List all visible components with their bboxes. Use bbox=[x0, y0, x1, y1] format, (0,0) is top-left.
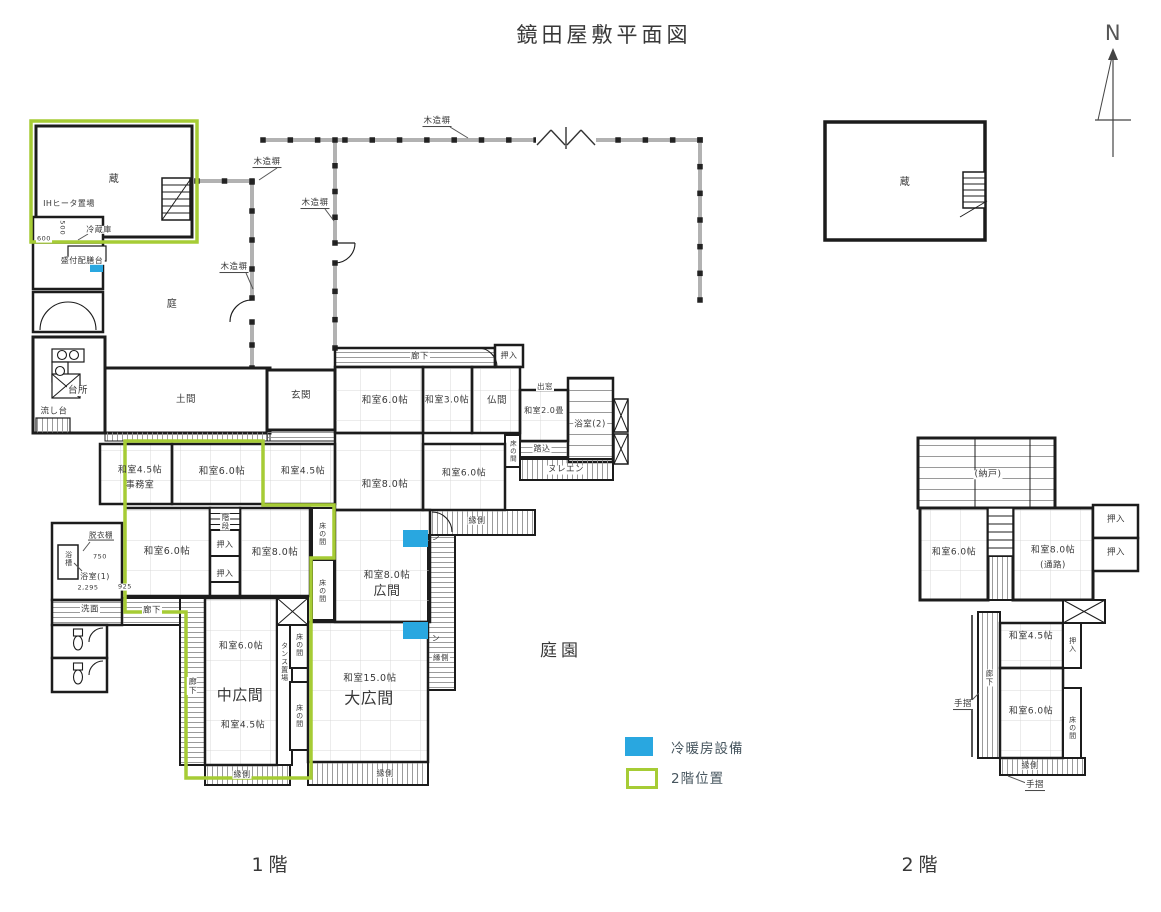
label-doma: 土間 bbox=[176, 395, 196, 405]
label-washitsu-45-office: 和室4.5帖 bbox=[118, 466, 162, 475]
label-tokonoma-d: 床の間 bbox=[294, 704, 303, 728]
label-demado: 出窓 bbox=[536, 383, 554, 391]
label-corridor-left: 廊下 bbox=[142, 607, 162, 616]
label-tansu-okiba: タンス置場 bbox=[279, 642, 288, 682]
label-kura-1f: 蔵 bbox=[109, 175, 120, 186]
label-kitchen: 台所 bbox=[67, 386, 89, 396]
label-refrigerator: 冷蔵庫 bbox=[85, 226, 113, 234]
label-fence-label-left: 木造塀 bbox=[252, 158, 281, 168]
label-engawa-2f: 縁側 bbox=[1021, 762, 1040, 770]
label-dim-600: 600 bbox=[36, 236, 52, 243]
label-kura-2f: 蔵 bbox=[900, 178, 911, 189]
plan-labels: 蔵IHヒータ置場冷蔵庫500600盛付配膳台木造塀木造塀木造塀木造塀庭台所流し台… bbox=[0, 0, 1161, 912]
label-ih-heater-area: IHヒータ置場 bbox=[42, 200, 96, 208]
caption-floor2: 2階 bbox=[901, 856, 942, 876]
label-kaidan-mid: 階段 bbox=[220, 514, 230, 531]
label-tesuri-bottom: 手摺 bbox=[1025, 781, 1045, 791]
label-tokonoma-1f-small: 床の間 bbox=[508, 440, 517, 463]
label-oshiire-2f-right-1: 押入 bbox=[1107, 516, 1125, 525]
legend-floor2-label: 2階位置 bbox=[671, 767, 724, 787]
label-washitsu-45-naka: 和室4.5帖 bbox=[221, 721, 265, 730]
label-tokonoma-c: 床の間 bbox=[294, 633, 303, 657]
garden-label: 庭園 bbox=[540, 643, 582, 661]
label-sink: 流し台 bbox=[39, 408, 68, 417]
legend-hvac-label: 冷暖房設備 bbox=[671, 737, 744, 757]
label-aircon-text-2: ン bbox=[432, 635, 441, 643]
label-aircon-text-1: ン bbox=[432, 534, 441, 542]
label-fumikomi: 踏込 bbox=[533, 445, 552, 453]
label-fence-label-mid: 木造塀 bbox=[300, 199, 329, 209]
label-washitsu-6-right: 和室6.0帖 bbox=[442, 469, 486, 478]
label-washitsu-6-2f: 和室6.0帖 bbox=[932, 548, 976, 557]
label-genkan: 玄関 bbox=[291, 391, 311, 401]
label-oshiire-2f-right-2: 押入 bbox=[1107, 549, 1125, 558]
label-washitsu-2: 和室2.0畳 bbox=[523, 407, 565, 415]
label-washitsu-45-2f: 和室4.5帖 bbox=[1009, 632, 1053, 641]
label-washitsu-8-center: 和室8.0帖 bbox=[362, 480, 409, 490]
label-dim-750: 750 bbox=[92, 554, 108, 561]
label-oshiire-top: 押入 bbox=[500, 352, 519, 360]
label-dai-hiroma: 大広間 bbox=[344, 691, 394, 708]
label-tesuri-left: 手摺 bbox=[953, 700, 973, 710]
label-oshiire-2f-v: 押入 bbox=[1067, 637, 1076, 653]
caption-floor1: 1階 bbox=[251, 856, 292, 876]
label-engawa-bottom-right: 縁側 bbox=[376, 770, 395, 778]
label-tsuro-2f: (通路) bbox=[1040, 562, 1066, 571]
label-engawa-upper-right: 縁側 bbox=[468, 517, 487, 525]
label-engawa-right: 縁側 bbox=[432, 654, 450, 662]
label-bathroom-2: 浴室(2) bbox=[573, 421, 607, 430]
label-dim-500: 500 bbox=[58, 220, 67, 235]
label-rouka-2f: 廊下 bbox=[984, 670, 994, 687]
label-dim-2295: 2,295 bbox=[76, 585, 99, 592]
floorplan-canvas: 蔵IHヒータ置場冷蔵庫500600盛付配膳台木造塀木造塀木造塀木造塀庭台所流し台… bbox=[0, 0, 1161, 912]
label-washitsu-6-top: 和室6.0帖 bbox=[362, 396, 409, 406]
label-oshiire-mid-1: 押入 bbox=[216, 541, 235, 549]
label-tokonoma-b: 床の間 bbox=[317, 579, 326, 603]
label-courtyard: 庭 bbox=[167, 300, 178, 311]
label-fence-label-lower: 木造塀 bbox=[219, 263, 248, 273]
label-washitsu-8-mid: 和室8.0帖 bbox=[252, 548, 299, 558]
label-serving-counter: 盛付配膳台 bbox=[60, 257, 105, 265]
label-oshiire-mid-2: 押入 bbox=[216, 570, 235, 578]
label-hiroma: 広間 bbox=[373, 585, 400, 599]
label-engawa-bottom-left: 縁側 bbox=[233, 771, 252, 779]
label-washitsu-8-2f: 和室8.0帖 bbox=[1031, 546, 1075, 555]
legend-floor2-swatch bbox=[626, 768, 658, 789]
label-corridor-naka: 廊下 bbox=[187, 677, 197, 695]
label-butsuma: 仏間 bbox=[487, 396, 507, 406]
label-naka-hiroma: 中広間 bbox=[217, 688, 264, 704]
label-washitsu-6b-2f: 和室6.0帖 bbox=[1009, 707, 1053, 716]
label-senmen: 洗面 bbox=[80, 606, 100, 615]
north-label: N bbox=[1105, 22, 1121, 44]
label-tokonoma-2f: 床の間 bbox=[1067, 716, 1076, 740]
label-bathroom-1: 浴室(1) bbox=[79, 573, 111, 581]
label-office: 事務室 bbox=[126, 481, 155, 490]
label-washitsu-3: 和室3.0帖 bbox=[425, 396, 469, 405]
label-datsui-dana: 脱衣棚 bbox=[88, 532, 114, 541]
label-tokonoma-a: 床の間 bbox=[317, 522, 326, 546]
label-washitsu-15: 和室15.0帖 bbox=[343, 674, 396, 684]
label-fence-label-top: 木造塀 bbox=[422, 117, 451, 127]
label-bathtub: 浴槽 bbox=[63, 551, 72, 567]
label-nando-2f: (納戸) bbox=[973, 470, 1002, 479]
label-washitsu-6-row2: 和室6.0帖 bbox=[199, 467, 246, 477]
label-dim-925: 925 bbox=[117, 584, 133, 591]
legend-hvac-swatch bbox=[625, 737, 653, 756]
label-washitsu-6-mid: 和室6.0帖 bbox=[144, 547, 191, 557]
label-washitsu-45-row2: 和室4.5帖 bbox=[281, 467, 325, 476]
label-corridor-top: 廊下 bbox=[410, 353, 430, 362]
label-washitsu-6-naka: 和室6.0帖 bbox=[219, 642, 263, 651]
page-title: 鏡田屋敷平面図 bbox=[517, 24, 692, 46]
label-nureen: ヌレエン bbox=[547, 466, 585, 475]
label-hiroma-size: 和室8.0帖 bbox=[364, 571, 411, 581]
